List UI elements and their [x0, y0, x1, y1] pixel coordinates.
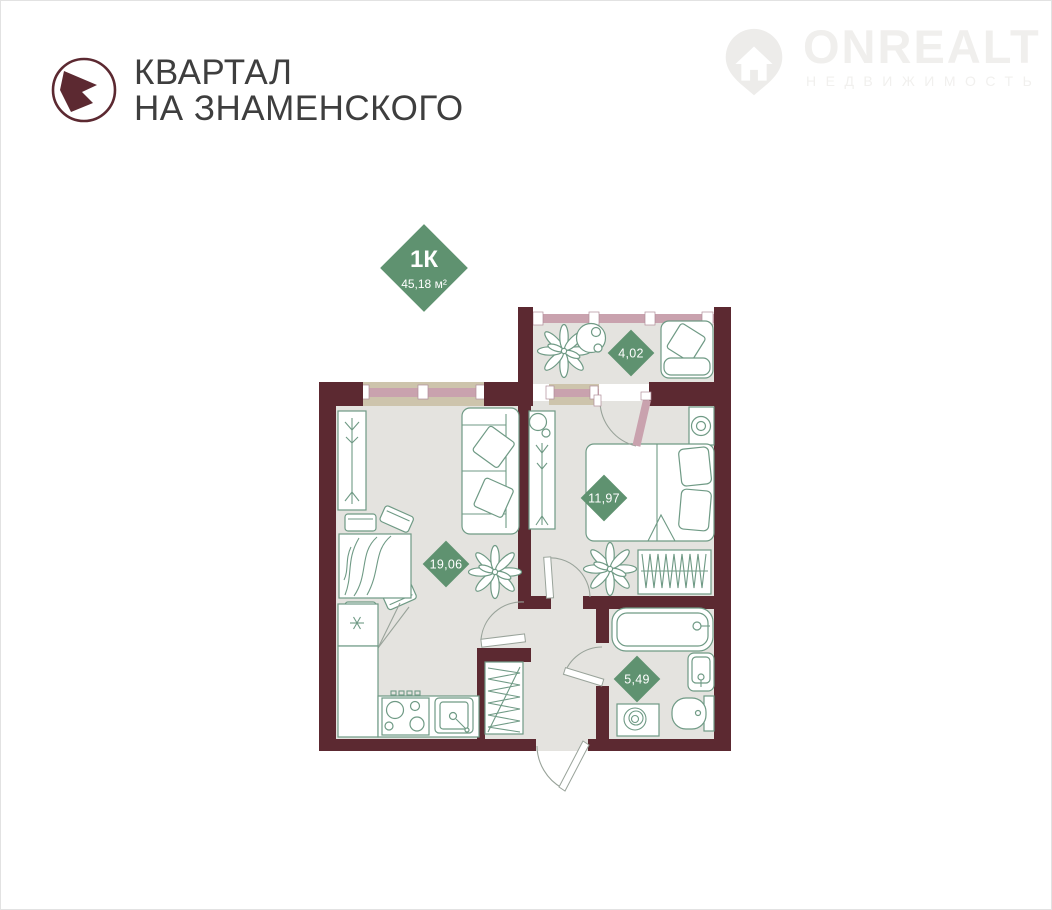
- bathtub: [612, 608, 713, 651]
- bedroom-balcony-window: [546, 384, 599, 405]
- coat-rack: [338, 411, 366, 510]
- kitchen-sink: [435, 698, 473, 733]
- chair: [345, 514, 376, 531]
- svg-text:11,97: 11,97: [588, 492, 620, 506]
- armchair: [661, 321, 713, 378]
- bathroom-sink: [688, 653, 714, 691]
- balcony-table: [577, 324, 606, 353]
- unit-area: 45,18 м²: [401, 277, 447, 291]
- sofa: [462, 408, 519, 534]
- hallway-closet: [485, 662, 523, 734]
- stove: [382, 691, 429, 735]
- unit-badge: 1К 45,18 м²: [380, 224, 468, 312]
- floorplan-page: КВАРТАЛ НА ЗНАМЕНСКОГО ONREALT НЕДВИЖИМО…: [0, 0, 1052, 910]
- plant: [584, 543, 637, 596]
- plant: [469, 546, 522, 599]
- floor-plan: 19,06 11,97 4,02 5,49 1К 45,18 м²: [1, 1, 1052, 910]
- svg-text:19,06: 19,06: [430, 558, 463, 572]
- washing-machine: [689, 407, 714, 445]
- toilet: [672, 696, 714, 731]
- wardrobe: [638, 550, 711, 594]
- unit-type: 1К: [410, 246, 438, 273]
- svg-text:5,49: 5,49: [624, 673, 650, 687]
- floor-drain-unit: [617, 704, 659, 736]
- svg-text:4,02: 4,02: [618, 347, 644, 361]
- living-window: [360, 382, 485, 406]
- dresser-coat-stand: [529, 411, 555, 529]
